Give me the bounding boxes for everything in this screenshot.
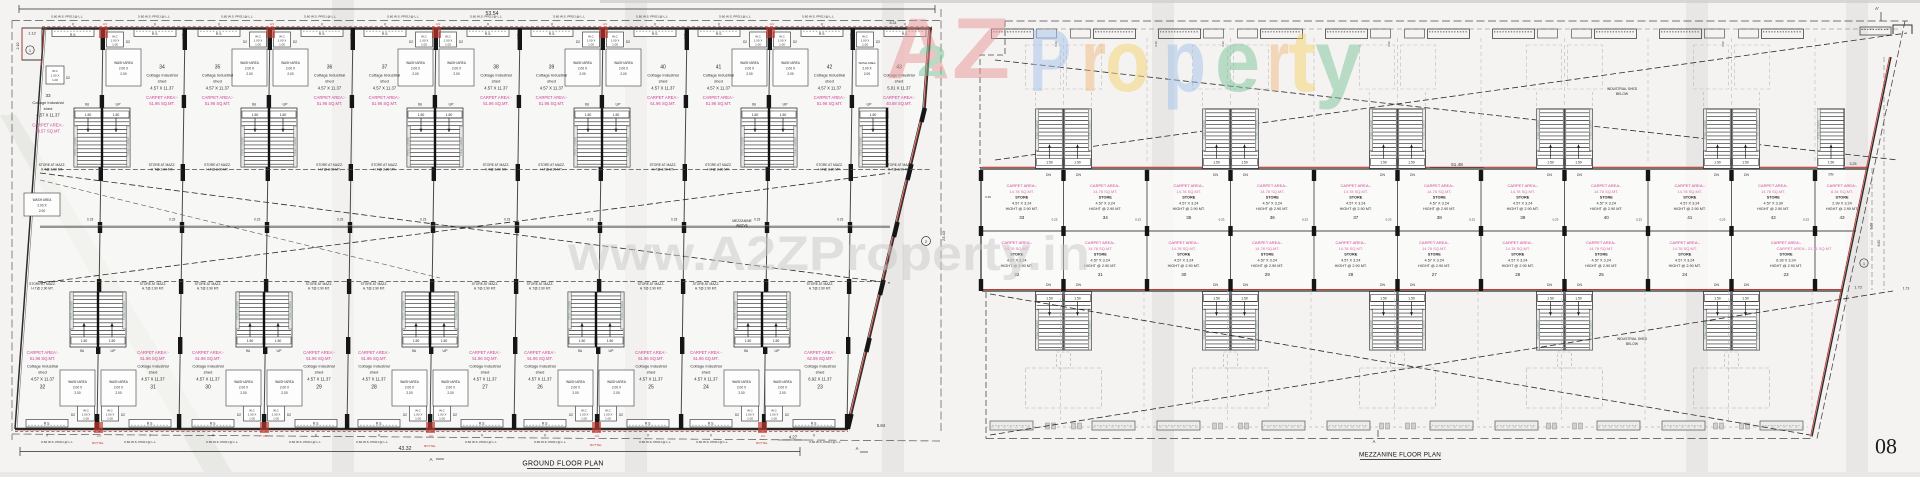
svg-text:51.48: 51.48 <box>1451 162 1463 167</box>
svg-text:R.S.: R.S. <box>210 422 217 426</box>
svg-text:BOTTEL: BOTTEL <box>92 441 104 445</box>
svg-text:mV: mV <box>603 22 608 26</box>
svg-text:14.78 SQ.MT.: 14.78 SQ.MT. <box>1589 246 1613 251</box>
svg-text:0.23: 0.23 <box>1469 218 1475 222</box>
svg-text:WASH AREA: WASH AREA <box>114 61 134 65</box>
svg-text:H.T@ 2.90 MT.: H.T@ 2.90 MT. <box>197 287 219 291</box>
svg-text:DN: DN <box>1547 173 1552 177</box>
svg-text:40.88 SQ.MT.: 40.88 SQ.MT. <box>886 101 912 106</box>
svg-text:14.78 SQ.MT.: 14.78 SQ.MT. <box>1511 189 1535 194</box>
svg-text:5.60 W.S. PROJ.@ L.L: 5.60 W.S. PROJ.@ L.L <box>636 15 668 19</box>
svg-text:37: 37 <box>1353 215 1359 220</box>
svg-text:shed: shed <box>816 370 825 375</box>
svg-text:CARPET AREA:-: CARPET AREA:- <box>1174 183 1205 188</box>
svg-text:43.32: 43.32 <box>399 446 412 452</box>
svg-text:1.00: 1.00 <box>581 417 587 421</box>
svg-text:STORE AT MAZZ.: STORE AT MAZZ. <box>705 163 732 167</box>
svg-text:62.59 SQ.MT.: 62.59 SQ.MT. <box>807 356 833 361</box>
svg-text:2.00: 2.00 <box>738 391 744 395</box>
svg-text:BOTTEL: BOTTEL <box>424 444 436 448</box>
svg-text:WASH AREA: WASH AREA <box>614 61 634 65</box>
svg-text:D2: D2 <box>459 40 463 44</box>
svg-text:UP: UP <box>775 349 781 353</box>
svg-text:5.60 W.S. PROJ.@ L.L: 5.60 W.S. PROJ.@ L.L <box>470 15 502 19</box>
svg-text:9U: 9U <box>412 349 417 353</box>
svg-text:CARPET AREA:-: CARPET AREA:- <box>480 95 512 100</box>
svg-text:1.73: 1.73 <box>1903 287 1910 291</box>
svg-text:DN: DN <box>1410 283 1415 287</box>
svg-text:29: 29 <box>316 385 322 391</box>
svg-text:4.57 X 11.37: 4.57 X 11.37 <box>651 86 675 91</box>
svg-text:37: 37 <box>382 65 388 71</box>
svg-text:HIGHT @ 2.90 MT.: HIGHT @ 2.90 MT. <box>1826 207 1858 211</box>
svg-text:CARPET AREA:-: CARPET AREA:- <box>192 350 224 355</box>
svg-text:9U: 9U <box>744 349 749 353</box>
svg-text:BOTTEL: BOTTEL <box>590 443 602 447</box>
svg-text:e: e <box>1215 11 1260 110</box>
svg-text:1.00: 1.00 <box>415 417 421 421</box>
svg-text:CARPET AREA:-: CARPET AREA:- <box>369 95 401 100</box>
svg-text:H.T@ 2.90 MT.: H.T@ 2.90 MT. <box>809 287 831 291</box>
svg-text:14.78 SQ.MT.: 14.78 SQ.MT. <box>1339 246 1363 251</box>
svg-text:R.S.: R.S. <box>549 32 556 36</box>
svg-text:51.96 SQ.MT.: 51.96 SQ.MT. <box>149 101 175 106</box>
svg-text:2.00 X: 2.00 X <box>411 67 421 71</box>
svg-text:W.C: W.C <box>52 69 58 73</box>
svg-text:H.T@ 2.90 MT.: H.T@ 2.90 MT. <box>540 168 562 172</box>
svg-text:R.S.: R.S. <box>376 422 383 426</box>
svg-text:14.78 SQ.MT.: 14.78 SQ.MT. <box>1010 189 1034 194</box>
svg-text:2.00 X: 2.00 X <box>37 204 47 208</box>
svg-text:DN: DN <box>1829 173 1834 177</box>
svg-text:H.T@ 2.90 MT.: H.T@ 2.90 MT. <box>888 168 910 172</box>
svg-text:2.99 X 3.24: 2.99 X 3.24 <box>1832 201 1851 205</box>
svg-text:H.T@ 2.90 MT.: H.T@ 2.90 MT. <box>373 168 395 172</box>
svg-text:mV: mV <box>103 22 108 26</box>
svg-text:D2: D2 <box>743 40 747 44</box>
svg-text:33: 33 <box>1019 215 1025 220</box>
svg-text:WASH AREA: WASH AREA <box>781 61 801 65</box>
svg-text:2.00 X: 2.00 X <box>446 386 456 390</box>
svg-text:R.S.: R.S. <box>819 32 826 36</box>
svg-text:R.S.: R.S. <box>542 422 549 426</box>
svg-text:24: 24 <box>703 385 709 391</box>
svg-text:14.78 SQ.MT.: 14.78 SQ.MT. <box>1093 189 1117 194</box>
svg-text:0.60 W.S. PROJ.@ L.L: 0.60 W.S. PROJ.@ L.L <box>639 440 671 444</box>
svg-text:2.00 X: 2.00 X <box>286 67 296 71</box>
svg-text:STORE AT MAZZ.: STORE AT MAZZ. <box>316 163 343 167</box>
svg-text:shed: shed <box>481 370 490 375</box>
svg-text:Cottage Industrial: Cottage Industrial <box>690 364 721 369</box>
svg-text:0.23: 0.23 <box>1387 41 1391 47</box>
svg-text:14.78 SQ.MT.: 14.78 SQ.MT. <box>1422 246 1446 251</box>
svg-text:0.60 W.S. PROJ.@ L.L: 0.60 W.S. PROJ.@ L.L <box>41 440 73 444</box>
svg-text:2.00 X: 2.00 X <box>245 67 255 71</box>
svg-text:2.00 X: 2.00 X <box>405 386 415 390</box>
svg-text:0.23: 0.23 <box>504 218 510 222</box>
svg-text:51.96 SQ.MT.: 51.96 SQ.MT. <box>483 101 509 106</box>
svg-text:D2: D2 <box>453 413 457 417</box>
svg-text:mV: mV <box>263 434 268 438</box>
svg-text:5.60 W.S. PROJ.@ L.L: 5.60 W.S. PROJ.@ L.L <box>304 15 336 19</box>
svg-text:2.00 X: 2.00 X <box>571 386 581 390</box>
svg-text:34: 34 <box>159 65 165 71</box>
svg-text:R.S.: R.S. <box>70 33 77 37</box>
svg-text:1.00: 1.00 <box>112 43 118 47</box>
svg-text:mV: mV <box>595 434 600 438</box>
svg-text:D2: D2 <box>403 413 407 417</box>
svg-text:D2: D2 <box>569 413 573 417</box>
svg-text:2.00 X: 2.00 X <box>745 67 755 71</box>
svg-text:31: 31 <box>1098 272 1104 277</box>
svg-text:5.60 W.S. PROJ.@ L.L: 5.60 W.S. PROJ.@ L.L <box>387 15 419 19</box>
svg-text:CARPET AREA:-: CARPET AREA:- <box>1591 183 1622 188</box>
svg-text:A: A <box>856 446 859 451</box>
svg-text:CARPET AREA:-: CARPET AREA:- <box>358 350 390 355</box>
svg-text:D2: D2 <box>576 40 580 44</box>
svg-text:H.T@ 2.90 MT.: H.T@ 2.90 MT. <box>474 287 496 291</box>
svg-text:STORE: STORE <box>1433 196 1446 200</box>
svg-text:33: 33 <box>45 93 51 98</box>
svg-text:2.00: 2.00 <box>620 72 626 76</box>
svg-text:www.A2ZProperty.in: www.A2ZProperty.in <box>567 228 1090 281</box>
svg-text:shed: shed <box>380 79 389 84</box>
svg-text:5.60 W.S. PROJ.@ L.L: 5.60 W.S. PROJ.@ L.L <box>221 15 253 19</box>
svg-text:DN: DN <box>1213 173 1218 177</box>
svg-text:40: 40 <box>660 65 666 71</box>
svg-text:2.00 X: 2.00 X <box>619 67 629 71</box>
svg-text:1.00: 1.00 <box>83 417 89 421</box>
svg-text:4.57 X 11.37: 4.57 X 11.37 <box>36 113 60 118</box>
svg-text:Cottage Industrial: Cottage Industrial <box>703 73 734 78</box>
svg-text:0.23: 0.23 <box>683 33 687 39</box>
svg-text:mV: mV <box>97 434 102 438</box>
svg-text:H.T@ 2.90 MT.: H.T@ 2.90 MT. <box>151 168 173 172</box>
svg-text:28: 28 <box>1348 272 1354 277</box>
svg-text:29: 29 <box>1265 272 1271 277</box>
svg-text:CARPET AREA:-: CARPET AREA:- <box>1771 240 1802 245</box>
svg-text:2.00: 2.00 <box>613 391 619 395</box>
svg-text:R.S.: R.S. <box>652 32 659 36</box>
svg-text:H.T@ 2.90 MT.: H.T@ 2.90 MT. <box>485 168 507 172</box>
svg-text:STORE: STORE <box>1516 196 1529 200</box>
svg-text:R.S.: R.S. <box>645 422 652 426</box>
svg-text:WASH AREA: WASH AREA <box>447 61 467 65</box>
svg-text:CARPET AREA:-: CARPET AREA:- <box>1827 183 1858 188</box>
svg-text:43: 43 <box>1839 215 1845 220</box>
svg-text:HIGHT @ 2.90 MT.: HIGHT @ 2.90 MT. <box>1168 264 1200 268</box>
svg-text:CARPET AREA:-: CARPET AREA:- <box>1508 183 1539 188</box>
svg-text:5.60 W.S. PROJ.@ L.L: 5.60 W.S. PROJ.@ L.L <box>138 15 170 19</box>
svg-text:D2: D2 <box>785 413 789 417</box>
svg-text:H.T@ 2.90 MT.: H.T@ 2.90 MT. <box>363 287 385 291</box>
svg-text:9U: 9U <box>246 349 251 353</box>
svg-text:38: 38 <box>1437 215 1443 220</box>
svg-text:shed: shed <box>44 106 53 111</box>
svg-text:STORE: STORE <box>1094 253 1107 257</box>
svg-text:32: 32 <box>40 385 46 391</box>
svg-text:9U: 9U <box>585 103 590 107</box>
svg-text:STORE AT MAZZ.: STORE AT MAZZ. <box>472 282 499 286</box>
svg-text:6.92 X 11.37: 6.92 X 11.37 <box>808 377 832 382</box>
svg-text:0.60 W.S. PROJ.@ L.L: 0.60 W.S. PROJ.@ L.L <box>534 440 566 444</box>
svg-text:WASH AREA: WASH AREA <box>740 61 760 65</box>
svg-text:2.00 X: 2.00 X <box>778 386 788 390</box>
svg-text:DN: DN <box>1076 283 1081 287</box>
svg-text:27: 27 <box>1432 272 1438 277</box>
svg-text:2.00: 2.00 <box>240 391 246 395</box>
svg-text:mV: mV <box>270 22 275 26</box>
svg-text:STORE: STORE <box>1182 196 1195 200</box>
svg-text:CARPET AREA:-: CARPET AREA:- <box>1758 183 1789 188</box>
svg-text:CARPET AREA:-: CARPET AREA:- <box>1670 240 1701 245</box>
svg-text:0.23: 0.23 <box>169 218 175 222</box>
svg-text:H.T@ 2.90 MT.: H.T@ 2.90 MT. <box>640 287 662 291</box>
svg-text:3.25: 3.25 <box>1850 162 1857 166</box>
svg-text:51.96 SQ.MT.: 51.96 SQ.MT. <box>30 356 56 361</box>
svg-text:R.S.: R.S. <box>44 422 51 426</box>
svg-text:40: 40 <box>1604 215 1610 220</box>
svg-text:STORE: STORE <box>1767 196 1780 200</box>
svg-text:0.23: 0.23 <box>1154 41 1158 47</box>
svg-text:D2: D2 <box>237 413 241 417</box>
svg-text:Cottage Industrial: Cottage Industrial <box>814 73 845 78</box>
svg-text:6.69: 6.69 <box>1870 223 1874 230</box>
svg-text:WASH AREA: WASH AREA <box>275 380 295 384</box>
svg-text:H.T@ 2.90 MT.: H.T@ 2.90 MT. <box>142 287 164 291</box>
svg-text:shed: shed <box>714 79 723 84</box>
svg-text:CARPET AREA:-: CARPET AREA:- <box>536 95 568 100</box>
svg-text:DN: DN <box>1243 283 1248 287</box>
svg-text:CARPET AREA:-: CARPET AREA:- <box>32 123 64 128</box>
svg-text:Cottage Industrial: Cottage Industrial <box>192 364 223 369</box>
svg-text:2.00: 2.00 <box>39 209 45 213</box>
svg-text:shed: shed <box>659 79 668 84</box>
svg-text:4.57 X 3.24: 4.57 X 3.24 <box>1096 201 1115 205</box>
svg-text:08: 08 <box>1875 434 1897 459</box>
svg-text:shed: shed <box>702 370 711 375</box>
svg-text:35: 35 <box>215 65 221 71</box>
svg-text:0.60 W.S. PROJ.@ L.L: 0.60 W.S. PROJ.@ L.L <box>809 440 841 444</box>
svg-text:HIGHT @ 2.90 MT.: HIGHT @ 2.90 MT. <box>1590 207 1622 211</box>
svg-text:DN: DN <box>1410 173 1415 177</box>
svg-text:0.23: 0.23 <box>1803 218 1809 222</box>
svg-text:STORE AT MAZZ.: STORE AT MAZZ. <box>638 282 665 286</box>
svg-text:0.23: 0.23 <box>420 218 426 222</box>
svg-text:CARPET AREA:-: CARPET AREA:- <box>1675 183 1706 188</box>
svg-text:1.00: 1.00 <box>771 417 777 421</box>
svg-text:STORE: STORE <box>1015 196 1028 200</box>
svg-text:UP: UP <box>616 103 622 107</box>
svg-text:STORE: STORE <box>1261 253 1274 257</box>
svg-text:WASH AREA: WASH AREA <box>773 380 793 384</box>
svg-text:STORE: STORE <box>1511 253 1524 257</box>
svg-text:H.T@ 2.90 MT.: H.T@ 2.90 MT. <box>206 168 228 172</box>
svg-text:0.60 W.S. PROJ.@ L.L: 0.60 W.S. PROJ.@ L.L <box>289 440 321 444</box>
svg-text:2: 2 <box>917 37 947 86</box>
svg-text:24: 24 <box>1682 272 1688 277</box>
svg-text:UP: UP <box>783 103 789 107</box>
svg-text:2.00: 2.00 <box>287 72 293 76</box>
svg-text:UP: UP <box>116 103 122 107</box>
svg-text:4.57 X 3.30: 4.57 X 3.30 <box>1764 201 1783 205</box>
svg-text:CARPET AREA:-: CARPET AREA:- <box>804 350 836 355</box>
svg-text:2.00: 2.00 <box>447 391 453 395</box>
svg-text:36: 36 <box>327 65 333 71</box>
svg-text:0.23: 0.23 <box>181 33 185 39</box>
svg-text:CARPET AREA:-: CARPET AREA:- <box>146 95 178 100</box>
svg-text:shed: shed <box>315 370 324 375</box>
svg-text:4.57 X 11.37: 4.57 X 11.37 <box>707 86 731 91</box>
svg-text:2.00: 2.00 <box>864 72 870 76</box>
svg-text:STORE: STORE <box>1683 196 1696 200</box>
svg-text:UP: UP <box>277 349 283 353</box>
svg-text:Cottage Industrial: Cottage Industrial <box>524 364 555 369</box>
svg-text:4.27: 4.27 <box>789 435 798 440</box>
svg-text:4.57 X 11.37: 4.57 X 11.37 <box>818 86 842 91</box>
svg-text:51.96 SQ.MT.: 51.96 SQ.MT. <box>539 101 565 106</box>
svg-text:y: y <box>1315 11 1362 110</box>
svg-text:D2: D2 <box>409 40 413 44</box>
svg-text:D2: D2 <box>293 40 297 44</box>
svg-text:0.23: 0.23 <box>849 33 853 39</box>
svg-text:Cottage Industrial: Cottage Industrial <box>358 364 389 369</box>
svg-text:CARPET AREA:-: CARPET AREA:- <box>27 350 59 355</box>
svg-text:4.57 X 3.24: 4.57 X 3.24 <box>1179 201 1198 205</box>
svg-text:Cottage Industrial: Cottage Industrial <box>804 364 835 369</box>
svg-text:0.23: 0.23 <box>1386 218 1392 222</box>
svg-text:4.57 X 3.24: 4.57 X 3.24 <box>1592 258 1611 262</box>
svg-text:HIGHT @ 2.90 MT.: HIGHT @ 2.90 MT. <box>1089 207 1121 211</box>
svg-text:HIGHT @ 2.90 MT.: HIGHT @ 2.90 MT. <box>1585 264 1617 268</box>
svg-text:R.S.: R.S. <box>479 422 486 426</box>
svg-text:4.57 X 11.37: 4.57 X 11.37 <box>694 377 718 382</box>
svg-text:STORE: STORE <box>1595 253 1608 257</box>
svg-text:51.96 SQ.MT.: 51.96 SQ.MT. <box>361 356 387 361</box>
svg-text:5.60 W.S. PROJ.@ L.L: 5.60 W.S. PROJ.@ L.L <box>802 15 834 19</box>
svg-text:CARPET AREA:-: CARPET AREA:- <box>647 95 679 100</box>
svg-text:HIGHT @ 2.90 MT.: HIGHT @ 2.90 MT. <box>1502 264 1534 268</box>
svg-text:4.57 X 11.37: 4.57 X 11.37 <box>373 86 397 91</box>
svg-text:shed: shed <box>38 370 47 375</box>
svg-text:R.S.: R.S. <box>485 32 492 36</box>
svg-text:STORE AT MAZZ.: STORE AT MAZZ. <box>29 282 56 286</box>
svg-text:HIGHT @ 2.90 MT.: HIGHT @ 2.90 MT. <box>1340 207 1372 211</box>
svg-text:8.34 SQ.MT.: 8.34 SQ.MT. <box>1831 189 1853 194</box>
svg-text:R.S.: R.S. <box>216 32 223 36</box>
svg-text:14.78 SQ.MT.: 14.78 SQ.MT. <box>1260 189 1284 194</box>
svg-text:STORE: STORE <box>1344 253 1357 257</box>
svg-text:9U: 9U <box>85 103 90 107</box>
svg-text:CARPET AREA:-: CARPET AREA:- <box>1007 183 1038 188</box>
svg-text:mV: mV <box>429 434 434 438</box>
svg-text:6.93 X 3.24: 6.93 X 3.24 <box>1776 258 1795 262</box>
svg-text:Cottage Industrial: Cottage Industrial <box>303 364 334 369</box>
svg-text:DN: DN <box>1243 173 1248 177</box>
svg-text:UP: UP <box>111 349 117 353</box>
svg-text:0.60 W.S. PROJ.@ L.L: 0.60 W.S. PROJ.@ L.L <box>356 440 388 444</box>
svg-text:DN: DN <box>1213 283 1218 287</box>
svg-text:CARPET AREA:-: CARPET AREA:- <box>690 350 722 355</box>
svg-text:mV: mV <box>770 22 775 26</box>
svg-text:CARPET AREA:-: CARPET AREA:- <box>469 350 501 355</box>
svg-text:STORE AT MAZZ.: STORE AT MAZZ. <box>816 163 843 167</box>
svg-text:STORE AT MAZZ.: STORE AT MAZZ. <box>483 163 510 167</box>
svg-text:4.57 X 11.37: 4.57 X 11.37 <box>196 377 220 382</box>
svg-text:shed: shed <box>536 370 545 375</box>
svg-text:Cottage Industrial: Cottage Industrial <box>635 364 666 369</box>
svg-text:51.96 SQ.MT.: 51.96 SQ.MT. <box>638 356 664 361</box>
svg-text:H.T@ 2.90 MT.: H.T@ 2.90 MT. <box>31 287 53 291</box>
svg-text:HIGHT @ 2.90 MT.: HIGHT @ 2.90 MT. <box>1251 264 1283 268</box>
svg-text:14.78 SQ.MT.: 14.78 SQ.MT. <box>1172 246 1196 251</box>
svg-text:1.12: 1.12 <box>28 31 37 36</box>
svg-text:D2: D2 <box>735 413 739 417</box>
svg-text:2.00 X: 2.00 X <box>280 386 290 390</box>
svg-text:STORE AT MAZZ.: STORE AT MAZZ. <box>140 282 167 286</box>
svg-text:0.25: 0.25 <box>985 195 991 199</box>
svg-text:STORE: STORE <box>1177 253 1190 257</box>
svg-text:2.00: 2.00 <box>572 391 578 395</box>
svg-text:WASH AREA: WASH AREA <box>68 380 88 384</box>
svg-text:Cottage Industrial: Cottage Industrial <box>536 73 567 78</box>
svg-text:Cottage Industrial: Cottage Industrial <box>32 100 63 105</box>
svg-text:STORE AT MAZZ.: STORE AT MAZZ. <box>886 163 913 167</box>
svg-text:UP: UP <box>443 349 449 353</box>
svg-text:4.57 X 3.24: 4.57 X 3.24 <box>1680 201 1699 205</box>
svg-text:36: 36 <box>1270 215 1276 220</box>
svg-text:42: 42 <box>827 65 833 71</box>
svg-text:Cottage Industrial: Cottage Industrial <box>314 73 345 78</box>
svg-text:4.57 X 11.37: 4.57 X 11.37 <box>318 86 342 91</box>
svg-text:R.S.: R.S. <box>319 32 326 36</box>
svg-text:R.S.: R.S. <box>152 32 159 36</box>
svg-text:25: 25 <box>648 385 654 391</box>
svg-text:4.57 X 3.24: 4.57 X 3.24 <box>1675 258 1694 262</box>
svg-text:H.T@ 2.90 MT.: H.T@ 2.90 MT. <box>308 287 330 291</box>
svg-text:shed: shed <box>204 370 213 375</box>
svg-text:STORE: STORE <box>1779 253 1792 257</box>
svg-text:30: 30 <box>1181 272 1187 277</box>
svg-text:4.57 X 11.37: 4.57 X 11.37 <box>473 377 497 382</box>
svg-text:0.23: 0.23 <box>337 218 343 222</box>
svg-text:CARPET AREA:-: CARPET AREA:- <box>814 95 846 100</box>
svg-text:DN: DN <box>1744 283 1749 287</box>
svg-text:4.57 X 11.37: 4.57 X 11.37 <box>362 377 386 382</box>
svg-text:WASH AREA: WASH AREA <box>441 380 461 384</box>
svg-text:0.23: 0.23 <box>1052 218 1058 222</box>
svg-text:1.00: 1.00 <box>273 417 279 421</box>
svg-text:HIGHT @ 2.90 MT.: HIGHT @ 2.90 MT. <box>1256 207 1288 211</box>
svg-text:31: 31 <box>150 385 156 391</box>
svg-text:UP: UP <box>867 103 873 107</box>
svg-text:2.00 X: 2.00 X <box>612 386 622 390</box>
svg-text:1.00: 1.00 <box>755 43 761 47</box>
svg-text:STORE AT MAZZ.: STORE AT MAZZ. <box>538 163 565 167</box>
svg-text:0.23: 0.23 <box>87 218 93 222</box>
svg-text:41: 41 <box>716 65 722 71</box>
svg-text:1.00: 1.00 <box>779 43 785 47</box>
svg-text:R.S.: R.S. <box>716 32 723 36</box>
svg-text:39: 39 <box>549 65 555 71</box>
svg-text:DN: DN <box>1046 173 1051 177</box>
svg-text:shed: shed <box>325 79 334 84</box>
svg-text:14.78 SQ.MT.: 14.78 SQ.MT. <box>1506 246 1530 251</box>
svg-text:MEZZANINE: MEZZANINE <box>732 219 752 223</box>
svg-text:5.60 W.S. PROJ.@ L.L: 5.60 W.S. PROJ.@ L.L <box>51 15 83 19</box>
svg-text:9U: 9U <box>578 349 583 353</box>
svg-text:CARPET AREA:-: CARPET AREA:- <box>1586 240 1617 245</box>
